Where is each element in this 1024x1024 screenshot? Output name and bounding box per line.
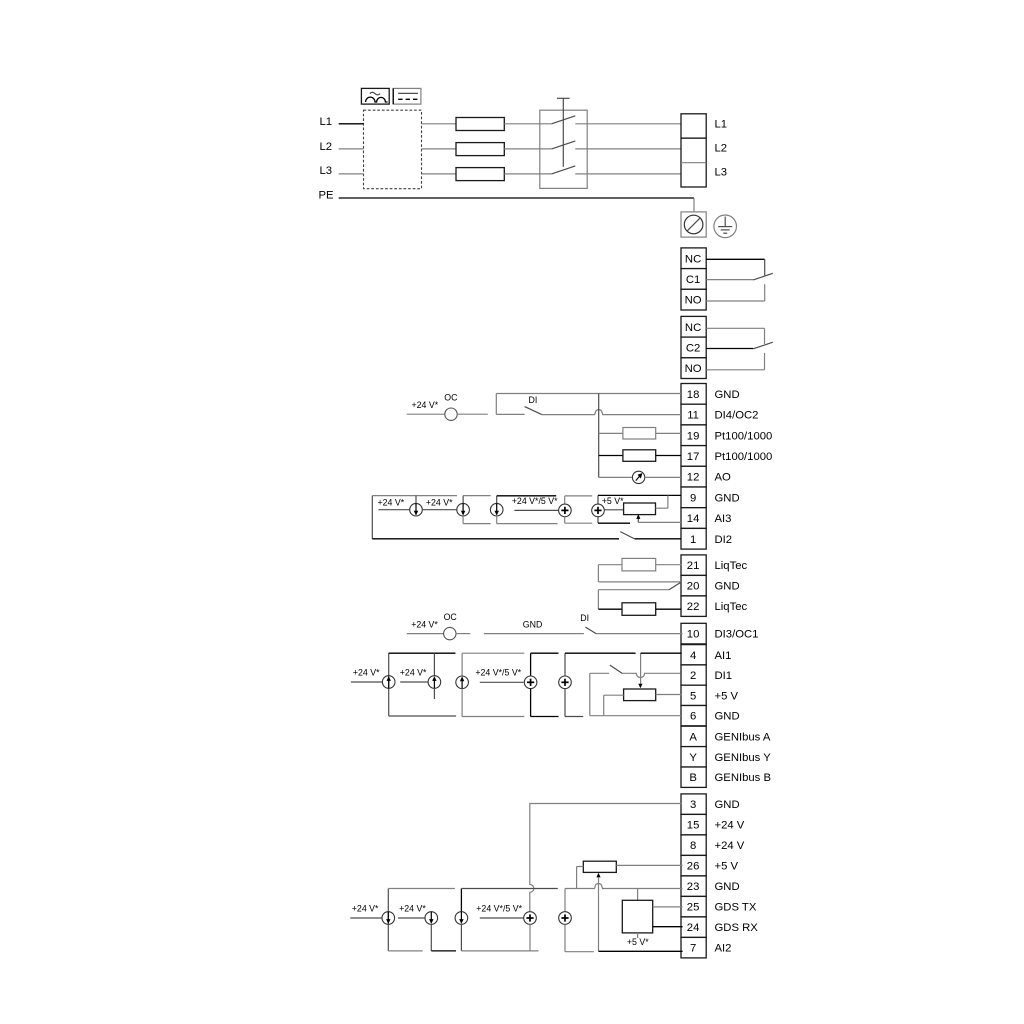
svg-text:OC: OC bbox=[444, 392, 458, 402]
svg-text:20: 20 bbox=[687, 581, 700, 593]
svg-text:Pt100/1000: Pt100/1000 bbox=[715, 430, 773, 442]
svg-text:+5 V: +5 V bbox=[715, 861, 739, 873]
svg-text:1: 1 bbox=[690, 534, 696, 546]
svg-text:22: 22 bbox=[687, 601, 700, 613]
svg-text:+24 V: +24 V bbox=[715, 840, 745, 852]
svg-text:C2: C2 bbox=[686, 342, 700, 354]
svg-text:L1: L1 bbox=[320, 116, 333, 128]
svg-text:C1: C1 bbox=[686, 274, 700, 286]
svg-text:8: 8 bbox=[690, 840, 696, 852]
svg-text:PE: PE bbox=[319, 189, 335, 201]
svg-text:14: 14 bbox=[687, 513, 700, 525]
svg-text:NO: NO bbox=[685, 295, 702, 307]
svg-text:12: 12 bbox=[687, 472, 700, 484]
svg-text:25: 25 bbox=[687, 902, 700, 914]
svg-text:NO: NO bbox=[685, 363, 702, 375]
svg-text:GND: GND bbox=[715, 581, 740, 593]
svg-text:+24 V*: +24 V* bbox=[353, 668, 380, 678]
svg-text:A: A bbox=[689, 731, 697, 743]
svg-text:L1: L1 bbox=[715, 119, 728, 131]
svg-text:15: 15 bbox=[687, 820, 700, 832]
svg-text:GND: GND bbox=[715, 799, 740, 811]
svg-text:DI: DI bbox=[580, 613, 589, 623]
svg-text:3: 3 bbox=[690, 799, 696, 811]
svg-text:L3: L3 bbox=[715, 167, 728, 179]
svg-text:LiqTec: LiqTec bbox=[715, 601, 748, 613]
svg-text:NC: NC bbox=[685, 253, 701, 265]
svg-text:DI4/OC2: DI4/OC2 bbox=[715, 410, 759, 422]
svg-text:19: 19 bbox=[687, 430, 700, 442]
svg-text:GND: GND bbox=[715, 389, 740, 401]
svg-text:+24 V*/5 V*: +24 V*/5 V* bbox=[512, 496, 558, 506]
svg-text:L2: L2 bbox=[320, 141, 333, 153]
svg-text:LiqTec: LiqTec bbox=[715, 560, 748, 572]
svg-text:10: 10 bbox=[687, 629, 700, 641]
svg-text:DI3/OC1: DI3/OC1 bbox=[715, 629, 759, 641]
svg-text:+24 V*: +24 V* bbox=[378, 497, 405, 507]
svg-text:GND: GND bbox=[715, 881, 740, 893]
svg-text:DI: DI bbox=[529, 395, 538, 405]
svg-text:AO: AO bbox=[715, 472, 732, 484]
svg-text:17: 17 bbox=[687, 451, 700, 463]
svg-text:Y: Y bbox=[689, 752, 697, 764]
svg-text:GENIbus A: GENIbus A bbox=[715, 731, 771, 743]
svg-text:AI2: AI2 bbox=[715, 943, 732, 955]
svg-text:L2: L2 bbox=[715, 143, 728, 155]
svg-text:6: 6 bbox=[690, 711, 696, 723]
svg-text:+24 V*: +24 V* bbox=[399, 904, 426, 914]
svg-text:5: 5 bbox=[690, 690, 696, 702]
svg-text:GND: GND bbox=[715, 711, 740, 723]
svg-text:+24 V*/5 V*: +24 V*/5 V* bbox=[476, 904, 522, 914]
svg-text:DI2: DI2 bbox=[715, 534, 733, 546]
svg-text:+24 V*: +24 V* bbox=[412, 400, 439, 410]
svg-text:18: 18 bbox=[687, 389, 700, 401]
svg-text:DI1: DI1 bbox=[715, 670, 733, 682]
svg-text:24: 24 bbox=[687, 922, 700, 934]
svg-text:AI3: AI3 bbox=[715, 513, 732, 525]
svg-text:B: B bbox=[689, 772, 697, 784]
svg-text:OC: OC bbox=[444, 612, 458, 622]
svg-text:9: 9 bbox=[690, 492, 696, 504]
svg-text:+5 V: +5 V bbox=[715, 690, 739, 702]
svg-text:GDS RX: GDS RX bbox=[715, 922, 759, 934]
svg-text:+24 V*: +24 V* bbox=[426, 497, 453, 507]
svg-text:23: 23 bbox=[687, 881, 700, 893]
svg-text:2: 2 bbox=[690, 670, 696, 682]
svg-text:7: 7 bbox=[690, 943, 696, 955]
svg-text:+24 V*: +24 V* bbox=[352, 904, 379, 914]
svg-text:GND: GND bbox=[715, 492, 740, 504]
svg-text:NC: NC bbox=[685, 322, 701, 334]
svg-text:GENIbus B: GENIbus B bbox=[715, 772, 772, 784]
svg-text:L3: L3 bbox=[320, 165, 333, 177]
svg-text:GENIbus Y: GENIbus Y bbox=[715, 752, 772, 764]
svg-text:Pt100/1000: Pt100/1000 bbox=[715, 451, 773, 463]
svg-text:21: 21 bbox=[687, 560, 700, 572]
svg-text:+24 V*: +24 V* bbox=[400, 668, 427, 678]
svg-text:11: 11 bbox=[687, 410, 699, 422]
svg-text:+24 V*/5 V*: +24 V*/5 V* bbox=[475, 667, 521, 677]
svg-text:4: 4 bbox=[690, 650, 696, 662]
svg-text:+5 V*: +5 V* bbox=[627, 937, 649, 947]
svg-text:+5 V*: +5 V* bbox=[602, 496, 624, 506]
svg-text:+24 V: +24 V bbox=[715, 820, 745, 832]
svg-text:GND: GND bbox=[523, 619, 543, 629]
svg-text:AI1: AI1 bbox=[715, 650, 732, 662]
svg-text:GDS TX: GDS TX bbox=[715, 902, 757, 914]
svg-text:26: 26 bbox=[687, 861, 700, 873]
svg-text:+24 V*: +24 V* bbox=[411, 620, 438, 630]
